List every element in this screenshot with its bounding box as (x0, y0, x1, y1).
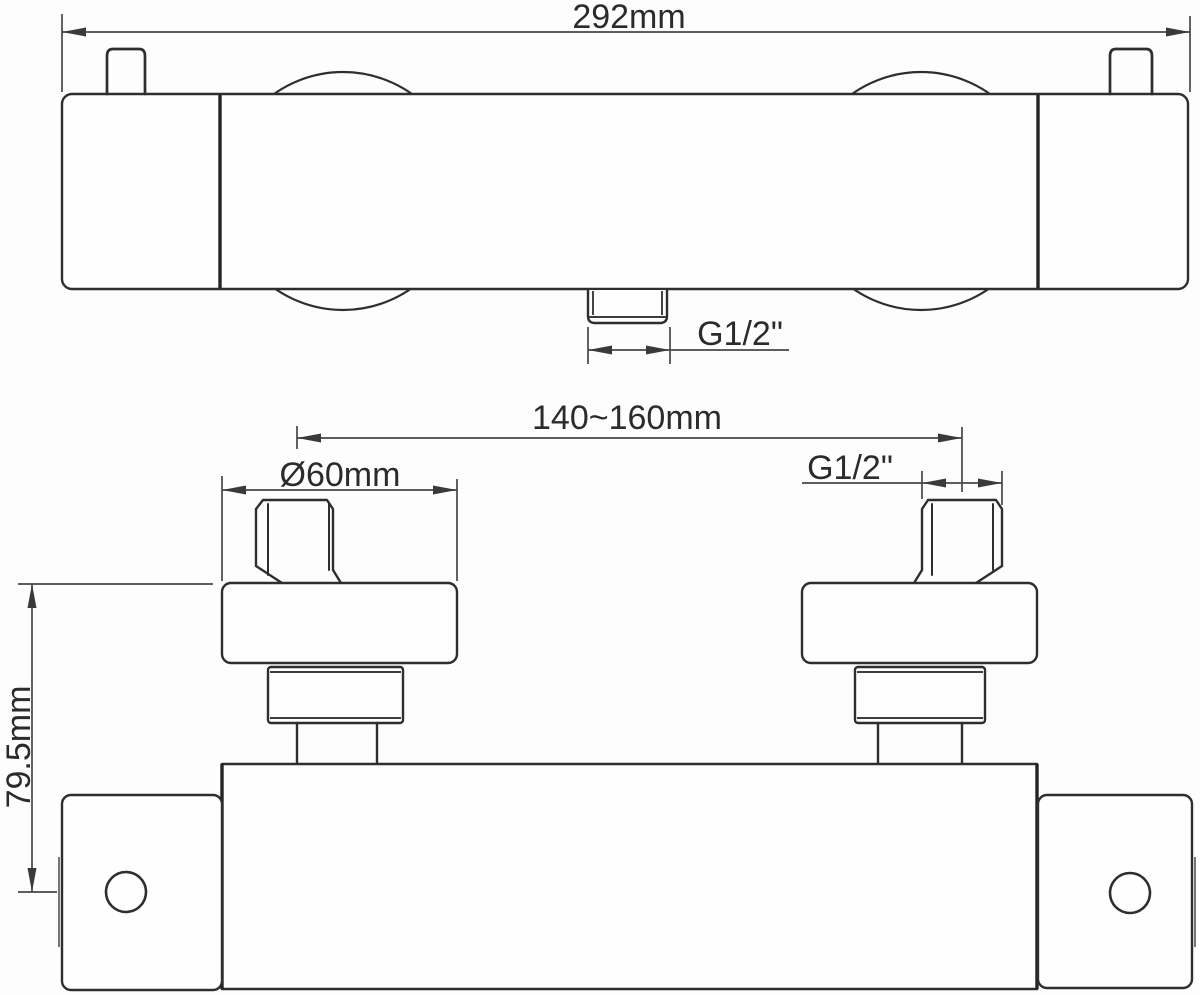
right-pipe (878, 723, 962, 764)
right-swivel-nut (855, 667, 985, 723)
arrowhead-up (28, 584, 37, 608)
drawing-canvas: 292mm G1/2" (0, 0, 1200, 995)
left-hex-nut-facets (268, 504, 329, 575)
left-handle-outline (62, 795, 222, 990)
arrowhead-left (222, 486, 246, 495)
right-hex-nut-facets (932, 504, 993, 575)
arrowhead-left (922, 479, 946, 488)
right-handle (1038, 795, 1195, 988)
overall-width-label: 292mm (572, 0, 685, 36)
arrowhead-right (1166, 28, 1190, 37)
inlet-spacing-label: 140~160mm (532, 399, 722, 437)
arrowhead-left (297, 434, 321, 443)
right-inlet-union (802, 500, 1037, 764)
arrowhead-down (28, 868, 37, 892)
top-view: 292mm G1/2" (62, 0, 1190, 364)
dim-overall-width: 292mm (62, 0, 1190, 92)
right-handle-outline (1038, 795, 1192, 988)
arrowhead-right (646, 346, 670, 355)
arrowhead-right (433, 486, 457, 495)
left-handle-tab (107, 49, 145, 94)
front-view: 140~160mm Ø60mm G1/2" 79.5mm (0, 399, 1195, 990)
mounting-height-label: 79.5mm (0, 686, 38, 809)
extension-lines (588, 327, 670, 364)
arrowhead-right (938, 434, 962, 443)
valve-body-top-view (62, 94, 1188, 289)
left-pipe (297, 723, 377, 764)
left-escutcheon (222, 583, 457, 663)
right-hex-nut (914, 500, 1002, 583)
valve-body-front-view (222, 764, 1037, 989)
outlet-spout (588, 290, 667, 323)
dim-escutcheon-diameter: Ø60mm (222, 456, 457, 581)
arrowhead-left (588, 346, 612, 355)
right-handle-tab (1110, 49, 1152, 94)
left-inlet-union (222, 500, 457, 764)
arrowhead-left (62, 28, 86, 37)
inlet-thread-label: G1/2" (807, 449, 893, 487)
outlet-thread-label: G1/2" (697, 315, 783, 353)
right-escutcheon (802, 583, 1037, 663)
dim-inlet-thread: G1/2" (802, 449, 1002, 505)
arrowhead-right (978, 479, 1002, 488)
escutcheon-diameter-label: Ø60mm (280, 456, 401, 494)
left-handle (59, 795, 222, 990)
technical-drawing: 292mm G1/2" (0, 0, 1200, 995)
left-swivel-nut (268, 667, 403, 723)
outlet-outline (588, 290, 667, 323)
